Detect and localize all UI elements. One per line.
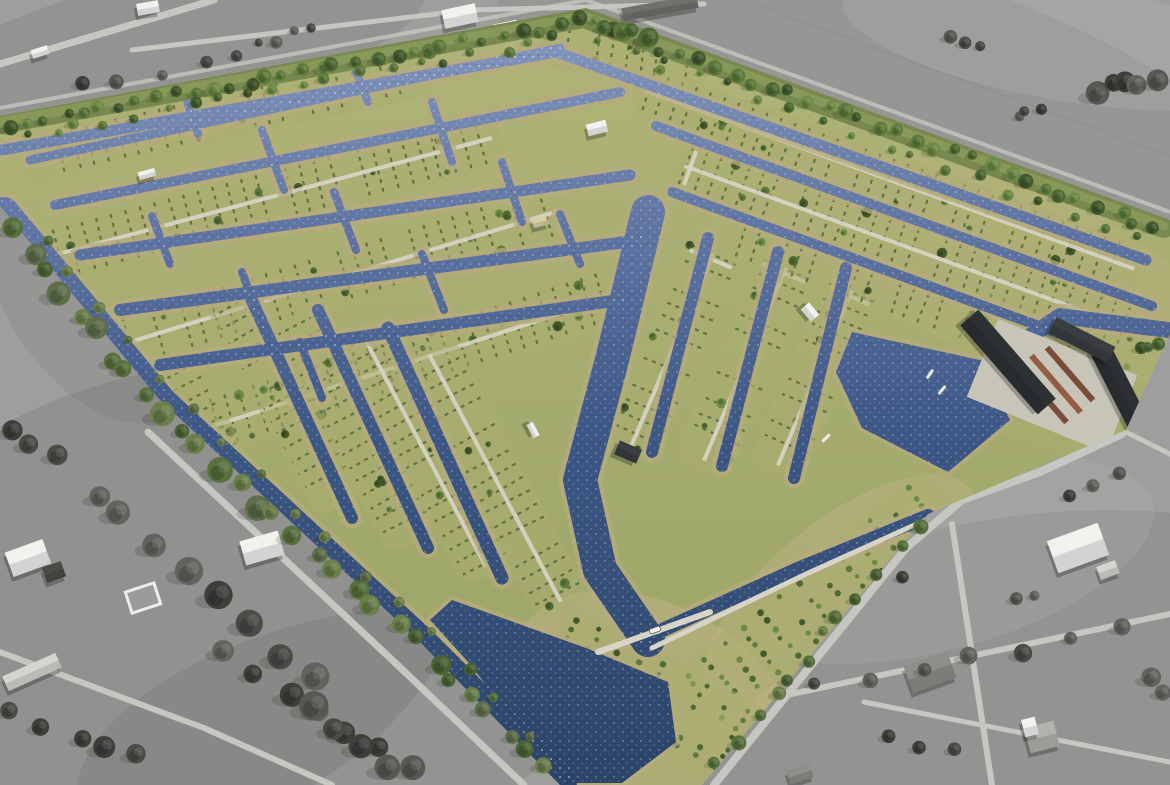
aerial-masterplan-render [0, 0, 1170, 785]
aerial-render-canvas [0, 0, 1170, 785]
